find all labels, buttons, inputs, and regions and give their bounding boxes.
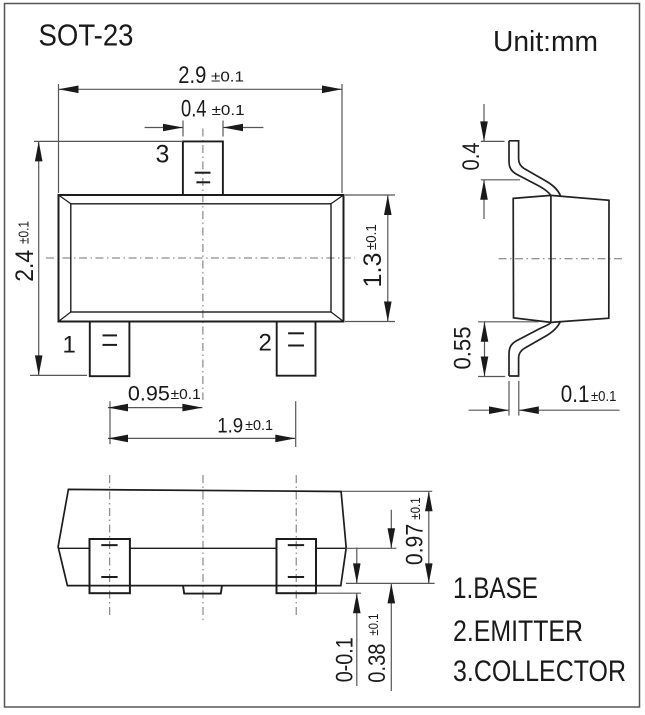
svg-text:0.38: 0.38 (364, 644, 391, 683)
svg-text:0.4: 0.4 (181, 95, 207, 122)
svg-text:2.EMITTER: 2.EMITTER (453, 615, 583, 648)
svg-text:0.55: 0.55 (450, 327, 477, 370)
svg-text:1.BASE: 1.BASE (453, 572, 538, 605)
svg-text:0-0.1: 0-0.1 (332, 637, 359, 682)
svg-text:0.95: 0.95 (128, 382, 170, 406)
svg-text:±0.1: ±0.1 (16, 221, 32, 244)
svg-text:0.1: 0.1 (561, 381, 590, 408)
svg-text:SOT-23: SOT-23 (39, 17, 134, 52)
svg-text:3.COLLECTOR: 3.COLLECTOR (453, 655, 626, 688)
svg-text:3: 3 (156, 140, 170, 168)
svg-text:±0.1: ±0.1 (171, 386, 201, 403)
svg-text:1.9: 1.9 (217, 413, 243, 437)
svg-text:2.9: 2.9 (178, 62, 206, 89)
svg-text:Unit:mm: Unit:mm (493, 26, 598, 58)
svg-text:±0.1: ±0.1 (211, 69, 244, 86)
svg-text:1: 1 (63, 332, 76, 359)
svg-text:2.4: 2.4 (11, 250, 39, 282)
svg-text:2: 2 (259, 330, 272, 357)
svg-text:0.97: 0.97 (402, 524, 429, 565)
svg-text:±0.1: ±0.1 (245, 417, 273, 434)
svg-text:0.4: 0.4 (458, 143, 485, 171)
svg-text:±0.1: ±0.1 (408, 497, 423, 519)
svg-text:±0.1: ±0.1 (364, 224, 380, 250)
svg-text:±0.1: ±0.1 (591, 388, 616, 405)
svg-text:1.3: 1.3 (359, 253, 387, 288)
svg-text:±0.1: ±0.1 (212, 102, 245, 119)
svg-text:±0.1: ±0.1 (366, 614, 381, 636)
